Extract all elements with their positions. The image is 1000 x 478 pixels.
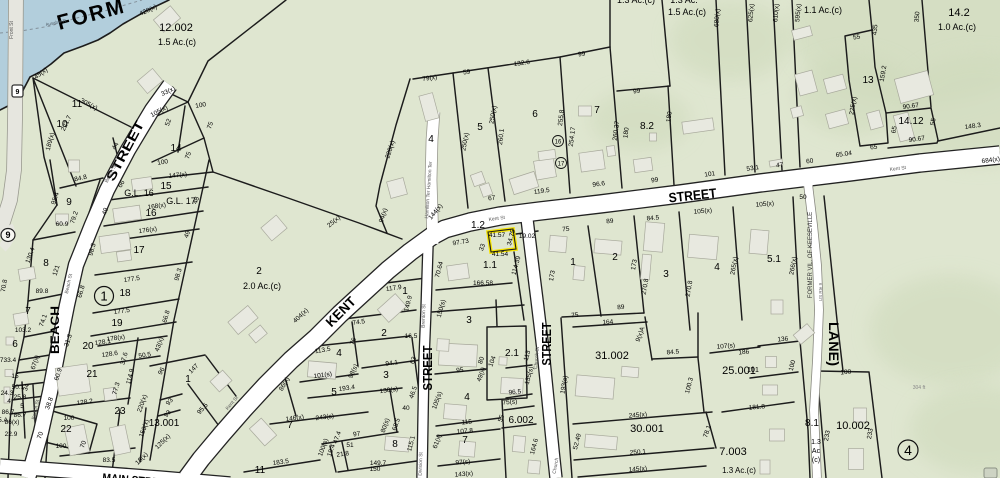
svg-text:BEACH: BEACH	[48, 306, 62, 354]
svg-text:304 ft: 304 ft	[913, 385, 926, 391]
svg-text:2: 2	[612, 252, 618, 263]
svg-text:15: 15	[160, 181, 172, 192]
svg-text:Brenton St: Brenton St	[421, 303, 428, 327]
svg-text:41.57: 41.57	[489, 232, 506, 239]
svg-text:G.L. 16: G.L. 16	[124, 188, 154, 198]
svg-text:143(x): 143(x)	[454, 470, 473, 478]
svg-text:13.001: 13.001	[149, 418, 180, 429]
svg-text:4: 4	[464, 392, 470, 403]
svg-text:89: 89	[617, 304, 625, 312]
svg-text:7: 7	[462, 435, 468, 446]
svg-text:1.1: 1.1	[483, 260, 497, 271]
svg-text:7.003: 7.003	[719, 446, 747, 458]
svg-text:103.2: 103.2	[15, 327, 32, 334]
svg-text:97: 97	[353, 430, 362, 438]
svg-text:16: 16	[555, 140, 562, 146]
svg-text:5: 5	[20, 403, 24, 410]
svg-text:180: 180	[665, 111, 673, 123]
svg-text:100: 100	[56, 443, 67, 450]
svg-text:4: 4	[7, 398, 11, 405]
svg-text:99: 99	[633, 87, 642, 95]
svg-text:21: 21	[86, 369, 98, 380]
svg-text:(c): (c)	[812, 457, 820, 464]
svg-text:6: 6	[532, 109, 538, 120]
svg-text:9: 9	[5, 230, 10, 240]
svg-text:1: 1	[100, 289, 107, 304]
svg-text:US Rte 9: US Rte 9	[818, 282, 823, 301]
svg-text:435: 435	[872, 24, 880, 36]
svg-text:30.001: 30.001	[630, 423, 664, 435]
svg-text:9: 9	[66, 197, 72, 208]
svg-text:1: 1	[570, 257, 576, 268]
svg-text:4: 4	[428, 134, 434, 145]
svg-text:9: 9	[16, 89, 20, 96]
svg-text:99: 99	[578, 50, 587, 58]
svg-text:6.002: 6.002	[508, 415, 533, 426]
svg-text:19: 19	[111, 318, 123, 329]
svg-text:136: 136	[777, 336, 789, 344]
svg-text:89.8: 89.8	[36, 288, 49, 295]
svg-text:7: 7	[25, 306, 31, 317]
svg-text:75(s): 75(s)	[502, 398, 517, 406]
svg-text:2: 2	[381, 328, 387, 339]
svg-text:181.8: 181.8	[748, 403, 765, 411]
svg-text:4: 4	[904, 442, 912, 458]
svg-text:13: 13	[862, 75, 874, 86]
svg-text:3: 3	[663, 269, 669, 280]
svg-text:Division St: Division St	[418, 451, 425, 475]
svg-text:86.7: 86.7	[14, 412, 27, 419]
svg-text:164: 164	[602, 319, 614, 327]
svg-text:1.3: 1.3	[811, 439, 821, 446]
svg-text:14: 14	[170, 143, 182, 154]
svg-text:51: 51	[346, 442, 354, 449]
svg-text:75: 75	[562, 226, 570, 234]
svg-text:18: 18	[119, 288, 131, 299]
svg-text:12.002: 12.002	[159, 22, 193, 34]
svg-text:150: 150	[370, 466, 381, 473]
svg-text:107.8: 107.8	[456, 427, 473, 435]
svg-text:1.5 Ac.(c): 1.5 Ac.(c)	[668, 7, 706, 17]
svg-text:1.3 Ac.: 1.3 Ac.	[670, 0, 698, 5]
svg-text:60.9: 60.9	[56, 221, 69, 228]
svg-text:7: 7	[594, 105, 600, 116]
svg-text:250.1: 250.1	[629, 448, 646, 456]
svg-text:89: 89	[606, 218, 614, 226]
svg-text:19.02: 19.02	[519, 233, 536, 240]
svg-text:1.3 Ac.(c): 1.3 Ac.(c)	[722, 466, 756, 475]
svg-text:180: 180	[622, 127, 630, 139]
svg-text:20: 20	[82, 341, 94, 352]
svg-text:G.L. 17: G.L. 17	[166, 196, 196, 206]
svg-text:59: 59	[463, 68, 472, 76]
svg-text:5: 5	[331, 387, 337, 398]
svg-text:60: 60	[806, 157, 815, 165]
svg-text:STREET: STREET	[539, 322, 554, 365]
svg-text:6: 6	[12, 339, 18, 350]
svg-text:99: 99	[651, 176, 660, 184]
svg-text:25.8: 25.8	[14, 394, 27, 401]
svg-text:166.58: 166.58	[473, 280, 493, 287]
svg-text:17: 17	[133, 245, 145, 256]
svg-text:115: 115	[461, 419, 472, 427]
svg-text:2.0 Ac.(c): 2.0 Ac.(c)	[243, 281, 281, 291]
svg-text:97(s): 97(s)	[455, 458, 470, 466]
svg-text:84.5: 84.5	[646, 214, 660, 222]
svg-text:14.12: 14.12	[898, 116, 923, 127]
svg-text:8.1: 8.1	[805, 418, 819, 429]
svg-text:83.5: 83.5	[103, 457, 116, 464]
svg-text:31.002: 31.002	[595, 350, 629, 362]
svg-text:86(x): 86(x)	[5, 419, 20, 426]
svg-text:10.002: 10.002	[836, 420, 870, 432]
svg-text:75: 75	[571, 312, 579, 320]
svg-text:11: 11	[255, 465, 266, 476]
svg-text:4: 4	[336, 348, 342, 359]
svg-text:1.0 Ac.(c): 1.0 Ac.(c)	[938, 22, 976, 32]
svg-text:100: 100	[64, 415, 75, 422]
svg-text:22: 22	[60, 424, 72, 435]
svg-text:65: 65	[870, 143, 879, 151]
svg-text:67: 67	[488, 194, 497, 202]
svg-text:2: 2	[256, 266, 262, 277]
svg-text:96.5: 96.5	[508, 388, 522, 396]
svg-text:733.4: 733.4	[0, 357, 17, 364]
svg-text:Front St: Front St	[9, 21, 15, 39]
svg-text:23: 23	[114, 406, 126, 417]
svg-text:8: 8	[392, 439, 398, 450]
svg-text:84.5: 84.5	[666, 348, 680, 356]
svg-text:FORMER VIL. OF KEESEVILLE: FORMER VIL. OF KEESEVILLE	[808, 212, 814, 298]
svg-text:5: 5	[477, 122, 483, 133]
svg-text:100: 100	[840, 369, 852, 377]
svg-text:101: 101	[747, 367, 759, 374]
svg-text:Ac: Ac	[812, 448, 821, 455]
svg-text:95: 95	[456, 367, 464, 375]
svg-text:350: 350	[914, 11, 922, 23]
svg-text:5.1: 5.1	[767, 254, 781, 265]
svg-text:186: 186	[738, 349, 750, 357]
svg-text:3: 3	[383, 370, 389, 381]
svg-text:LANE): LANE)	[826, 322, 841, 366]
svg-text:1.1 Ac.(c): 1.1 Ac.(c)	[804, 5, 842, 15]
svg-text:17: 17	[558, 162, 565, 168]
svg-text:STREET: STREET	[420, 345, 435, 390]
svg-text:4: 4	[714, 262, 720, 273]
svg-text:24.3: 24.3	[1, 390, 14, 397]
svg-text:8: 8	[43, 258, 49, 269]
svg-text:16.5: 16.5	[405, 333, 418, 340]
svg-text:22.9: 22.9	[5, 431, 18, 438]
svg-text:1: 1	[185, 374, 191, 385]
svg-text:14.2: 14.2	[948, 7, 969, 19]
svg-text:47: 47	[776, 161, 785, 169]
svg-text:41.54: 41.54	[492, 251, 509, 258]
svg-text:40: 40	[402, 405, 410, 412]
svg-text:1.3 Ac.(c): 1.3 Ac.(c)	[617, 0, 655, 5]
svg-text:8.2: 8.2	[640, 121, 654, 132]
svg-text:15: 15	[11, 373, 19, 380]
svg-text:1.5 Ac.(c): 1.5 Ac.(c)	[158, 37, 196, 47]
svg-text:2.1: 2.1	[505, 348, 519, 359]
svg-text:1.2: 1.2	[471, 220, 485, 231]
svg-text:50: 50	[799, 194, 807, 201]
svg-text:3: 3	[466, 315, 472, 326]
